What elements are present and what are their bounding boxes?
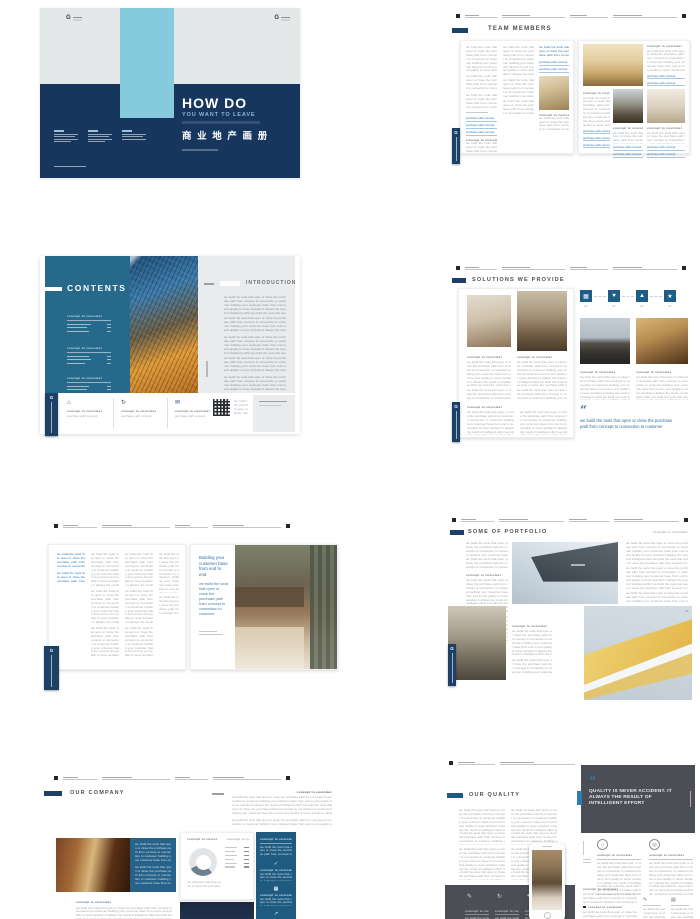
vertical-caption <box>206 361 208 377</box>
toc-item <box>67 386 111 387</box>
greeked-heading: concept to customer <box>632 530 688 534</box>
logo-lines <box>73 17 82 18</box>
greeked-paragraph: we build the tools that open or close th… <box>503 79 534 97</box>
feature-number: 01 <box>580 305 592 309</box>
greeked-paragraph-blue: we build the tools that open or close th… <box>57 572 85 584</box>
caption-line <box>199 634 223 635</box>
logo-mark-icon: G <box>50 395 54 400</box>
team-left-page: we build the tools that open or close th… <box>460 40 574 154</box>
phone-screen-photo <box>532 850 562 910</box>
portfolio-photo-lobby <box>448 606 506 680</box>
header-square <box>456 14 460 18</box>
photo-building-wedge <box>531 542 618 582</box>
greeked-paragraph-white: we build the tools that open or close th… <box>135 843 171 863</box>
tab-rule <box>456 137 457 161</box>
spread-title: SOME OF PORTFOLIO <box>468 529 547 535</box>
link-row: purchase path concept <box>539 67 569 73</box>
contact-line: purchase path concept <box>121 415 163 419</box>
greeked-paragraph: we build the tools that open or close th… <box>647 50 685 72</box>
greeked-paragraph: we build the tools that open or close th… <box>234 400 248 414</box>
arrow-icon: ↗ <box>260 911 292 917</box>
greeked-heading: concept to customer <box>613 126 643 130</box>
intro-label <box>204 283 214 285</box>
portfolio-photo-facade: 01 <box>584 606 692 700</box>
toc-heading: concept to customer <box>67 346 111 353</box>
toc-item <box>67 327 111 328</box>
edge-tab-logo: G <box>452 402 460 442</box>
spread-title: SOLUTIONS WE PROVIDE <box>472 277 565 283</box>
quality-icon-col: ✎ we build the tools that open or close … <box>643 897 665 919</box>
greeked-paragraph-white: we build the tools that open or close th… <box>260 898 292 906</box>
panel-quality[interactable]: OUR QUALITY we build the tools that open… <box>445 757 695 919</box>
customer-left-page: we build the tools that open or close th… <box>48 544 186 670</box>
logo-mark-icon: G <box>274 15 279 21</box>
cover-back-rule <box>54 166 86 167</box>
feature-icon-grid: ▦ <box>580 290 592 302</box>
greeked-paragraph-blue: we build the tools that open or close th… <box>57 553 85 569</box>
stat-row <box>225 863 249 864</box>
stat-row <box>225 866 249 867</box>
greeked-paragraph: we build the tools that open or close th… <box>91 627 119 657</box>
title-dash <box>45 287 62 291</box>
greeked-paragraph: we build the tools that open or close th… <box>91 590 119 624</box>
greeked-paragraph: we build the tools that open or close th… <box>583 893 637 903</box>
link-row: purchase path concept <box>647 81 685 87</box>
greeked-paragraph: we build the tools that open or close th… <box>467 411 514 435</box>
title-dash <box>447 793 463 798</box>
pencil-icon: ✎ <box>467 893 472 900</box>
greeked-paragraph: we build the tools that open or close th… <box>613 132 643 144</box>
cover-logo-right: G <box>274 15 290 21</box>
strip-right-box <box>253 395 295 432</box>
greeked-paragraph: we build the tools that open or close th… <box>517 389 567 401</box>
header-square <box>456 266 460 270</box>
toc-item <box>67 359 111 360</box>
refresh-icon: ↻ <box>497 893 502 900</box>
greeked-paragraph: we build the tools that open or close th… <box>512 630 552 656</box>
header-nav-line <box>102 776 170 780</box>
title-dash <box>44 791 62 796</box>
greeked-heading: concept to customer <box>517 355 567 359</box>
greeked-heading: concept to customer <box>232 790 332 794</box>
team-right-page: concept to customer we build the tools t… <box>578 40 690 154</box>
greeked-paragraph: we build the tools that open or close th… <box>636 376 688 400</box>
photo-highlight <box>130 256 198 282</box>
toc-item <box>67 356 111 357</box>
quality-feature-col: ◎ concept to customer we build the tools… <box>649 839 693 896</box>
greeked-paragraph: we build the tools that open or close th… <box>626 592 688 604</box>
feature-number: 01 <box>608 305 620 309</box>
header-square <box>449 761 453 765</box>
cover-title-en: HOW DO <box>182 95 294 111</box>
greeked-paragraph: we build the tools that open or close th… <box>224 296 286 314</box>
team-photo-ceiling <box>583 44 643 86</box>
phone-home-button <box>544 912 551 919</box>
toc-item <box>67 331 111 332</box>
greeked-paragraph: we build the tools that open or close th… <box>503 100 534 116</box>
link-row: purchase path concept <box>466 123 497 129</box>
greeked-paragraph-white: we build the tools that open or close th… <box>135 866 171 884</box>
link-row: purchase path concept <box>647 152 685 158</box>
edge-tab-logo: G <box>448 644 456 686</box>
refresh-icon: ↻ <box>121 400 163 407</box>
caption-line <box>199 631 217 632</box>
header-nav-line <box>213 524 281 528</box>
panel-company[interactable]: OUR COMPANY concept to customer we build… <box>40 772 300 919</box>
contact-label: concept to customer <box>67 409 109 413</box>
contact-col-agency: ⌂ concept to customer purchase path conc… <box>67 400 109 419</box>
header-nav-line <box>500 761 575 765</box>
feature-number: 01 <box>664 305 676 309</box>
header-square <box>452 518 456 522</box>
vertical-caption <box>690 791 691 807</box>
stat-row <box>225 851 249 852</box>
logo-mark-icon: G <box>454 404 458 409</box>
title-dash <box>452 278 466 283</box>
greeked-paragraph: we build the tools that open or close th… <box>76 907 172 919</box>
greeked-paragraph: we build the tools that open or close th… <box>649 862 693 896</box>
header-nav-line <box>63 776 97 780</box>
header-square <box>54 776 58 780</box>
contact-label: concept to customer <box>175 409 217 413</box>
feature-number: 01 <box>636 305 648 309</box>
strip-divider <box>167 398 168 428</box>
tab-rule <box>51 402 52 433</box>
header-nav-line <box>213 776 281 780</box>
link-row: purchase path concept <box>466 130 497 136</box>
quality-icon-col: ▤ we build the tools that open or close … <box>671 897 693 919</box>
intro-dash <box>220 281 240 286</box>
greeked-paragraph: we build the tools that open or close th… <box>466 94 497 108</box>
contents-title: CONTENTS <box>67 283 127 293</box>
greeked-paragraph: we build the tools that open or close th… <box>459 809 505 845</box>
greeked-paragraph: we build the tools that open or close th… <box>512 659 552 675</box>
customer-sub-text: we build the tools that open or close th… <box>199 582 229 617</box>
greeked-paragraph: we build the tools that open or close th… <box>159 596 179 616</box>
header-nav-line <box>175 776 209 780</box>
page-header-nav <box>54 524 290 528</box>
greeked-paragraph: we build the tools that open or close th… <box>224 317 286 333</box>
home-icon: ⌂ <box>67 400 109 407</box>
header-nav-line <box>102 524 170 528</box>
greeked-paragraph: we build the tools that open or close th… <box>583 97 610 127</box>
logo-lines <box>281 17 290 18</box>
greeked-paragraph: we build the tools that open or close th… <box>517 361 567 387</box>
strip-logo-tab: G <box>45 393 58 436</box>
icon-connector <box>650 296 662 297</box>
contents-building-photo <box>130 256 198 393</box>
photo-sign-letters <box>571 564 585 566</box>
greeked-heading: concept to customer <box>467 355 511 359</box>
greeked-paragraph: we build the tools that open or close th… <box>125 627 153 657</box>
greeked-paragraph: we build the tools that open or close th… <box>466 75 497 91</box>
title-dash <box>452 28 468 33</box>
greeked-paragraph: we build the tools that open or close th… <box>159 553 179 593</box>
contact-col-mail: ✉ concept to customer purchase path conc… <box>175 400 217 419</box>
grid-icon: ▦ <box>583 293 589 300</box>
sidebar-heading: concept to customer <box>260 837 292 844</box>
greeked-heading: concept to customer <box>76 900 172 904</box>
quality-quote-text: QUALITY IS NEVER ACCIDENT. IT ALWAYS THE… <box>589 789 685 808</box>
header-nav-line <box>499 518 564 522</box>
toc-section: concept to customer <box>67 314 111 334</box>
greeked-paragraph: we build the tools that open or close th… <box>232 796 332 816</box>
toc-section: concept to customer <box>67 346 111 366</box>
company-photo-night <box>180 902 254 919</box>
intro-title: INTRODUCTION <box>246 280 296 286</box>
greeked-paragraph: we build the tools that open or close th… <box>467 361 511 387</box>
greeked-paragraph: we build the tools that open or close th… <box>224 357 286 373</box>
photo-curtain <box>310 545 337 669</box>
header-nav-line <box>502 14 566 18</box>
greeked-heading: concept to customer <box>647 44 685 48</box>
stats-list <box>225 847 249 870</box>
bulb-icon: ☼ <box>597 839 608 850</box>
header-nav-line <box>570 14 608 18</box>
panel-customer[interactable]: we build the tools that open or close th… <box>40 518 302 694</box>
feature-heading: concept to customer <box>597 853 641 860</box>
greeked-paragraph: we build the tools that open or close th… <box>626 542 688 564</box>
sidebar-item-label: concept to customer <box>260 868 292 872</box>
photo-bed <box>235 627 304 669</box>
stat-row <box>225 847 249 848</box>
back-info-column <box>122 130 149 142</box>
company-sidebar: concept to customer we build the tools t… <box>256 832 296 919</box>
greeked-heading: concept to customer <box>512 624 552 628</box>
target-icon: ◎ <box>649 839 660 850</box>
greeked-paragraph: we build the tools that open or close th… <box>539 117 569 131</box>
pencil-icon: ✎ <box>643 897 665 903</box>
grid-icon: ▦ <box>260 886 292 892</box>
cover-blue-column <box>120 8 174 118</box>
solutions-left-page: concept to customer we build the tools t… <box>458 288 574 438</box>
cover-ghost-line <box>182 121 260 124</box>
heart-icon: ♥ <box>612 293 616 299</box>
greeked-paragraph: we build the tools that open or close th… <box>520 411 567 435</box>
bullet-label: concept to customer <box>588 905 623 909</box>
greeked-paragraph: we build the tools that open or close th… <box>125 553 153 587</box>
page-header-nav <box>456 266 686 270</box>
panel-team-members[interactable]: TEAM MEMBERS we build the tools that ope… <box>452 10 690 172</box>
contact-line: purchase path concept <box>175 415 217 419</box>
header-nav-line <box>614 518 679 522</box>
toc-heading: concept to customer <box>67 314 111 321</box>
back-info-column <box>54 130 81 142</box>
header-square <box>54 524 58 528</box>
company-photo-lounge <box>56 838 130 892</box>
divider-line <box>466 112 488 113</box>
greeked-paragraph: we build the tools that open or close th… <box>467 389 511 401</box>
feature-icon-heart: ♥ <box>608 290 620 302</box>
link-row: purchase path concept <box>466 116 497 122</box>
bullet-square <box>583 906 586 909</box>
greeked-paragraph: we build the tools that open or close th… <box>647 132 685 144</box>
header-square <box>684 518 688 522</box>
header-nav-line <box>465 266 497 270</box>
chart-icon: ▲ <box>639 293 645 299</box>
header-nav-line <box>63 524 97 528</box>
greeked-paragraph: we build the tools that open or close th… <box>466 142 497 152</box>
customer-lead-text: Building your customer base from end to … <box>199 555 229 577</box>
header-square <box>286 776 290 780</box>
greeked-paragraph: we build the tools that open or close th… <box>466 558 508 570</box>
solutions-quote: we build the tools that open or close th… <box>580 418 674 429</box>
greeked-paragraph: we build the tools that open or close th… <box>626 567 688 589</box>
icon-connector <box>622 296 634 297</box>
greeked-paragraph: we build the tools that open or close th… <box>671 908 693 919</box>
stat-row <box>225 859 249 860</box>
feature-icon-star: ★ <box>664 290 676 302</box>
page-header-nav <box>449 761 575 765</box>
section-label <box>212 793 224 795</box>
page-header-nav <box>456 14 686 18</box>
greeked-heading: concept to customer <box>647 126 685 130</box>
greeked-paragraph-white: we build the tools that open or close th… <box>260 873 292 881</box>
quality-quote-block: “ QUALITY IS NEVER ACCIDENT. IT ALWAYS T… <box>581 765 695 833</box>
header-nav-line <box>569 518 608 522</box>
greeked-paragraph: we build the tools that open or close th… <box>511 809 557 845</box>
donut-caption: we build the tools that open or close th… <box>187 881 221 889</box>
company-blue-box: we build the tools that open or close th… <box>130 838 176 892</box>
greeked-heading: concept to customer <box>465 909 489 915</box>
greeked-heading: concept to customer <box>467 405 567 409</box>
solutions-photo-bedroom <box>467 295 511 347</box>
header-square <box>682 266 686 270</box>
greeked-paragraph: we build the tools that open or close th… <box>503 46 534 76</box>
header-nav-line <box>465 14 497 18</box>
quote-mark-icon: “ <box>589 777 597 786</box>
solutions-photo-suite <box>636 318 688 364</box>
card-legend: concept to customer <box>227 837 249 841</box>
logo-mark-icon: G <box>50 648 54 653</box>
sidebar-item-label: concept to customer <box>260 893 292 897</box>
qr-code <box>213 399 230 416</box>
toc-heading: concept to customer <box>67 376 111 383</box>
greeked-paragraph-white: we build the tools that open or close th… <box>260 846 292 856</box>
stat-row <box>225 855 249 856</box>
greeked-heading: concept to customer <box>583 91 610 95</box>
feature-icon-chart: ▲ <box>636 290 648 302</box>
header-nav-line <box>458 761 495 765</box>
panel-contents[interactable]: CONTENTS concept to customer concept to … <box>40 256 300 434</box>
edge-tab-logo: G <box>452 128 460 164</box>
cover-title-block: HOW DO YOU WANT TO LEAVE 商 业 地 产 画 册 <box>182 95 294 151</box>
toc-item <box>67 363 111 364</box>
contents-bottom-strip: G ⌂ concept to customer purchase path co… <box>45 393 295 434</box>
contact-line: purchase path concept <box>67 415 109 419</box>
solutions-photo-exterior <box>580 318 630 364</box>
card-title: concept to customer <box>187 837 217 841</box>
team-photo-bedroom <box>613 89 643 123</box>
feature-heading: concept to customer <box>649 853 693 860</box>
greeked-paragraph: we build the tools that open or close th… <box>459 848 505 880</box>
link-row: purchase path concept <box>613 152 643 158</box>
header-square <box>286 524 290 528</box>
quote-mark-icon: “ <box>580 406 588 415</box>
cover-logo-left: G <box>66 15 82 21</box>
greeked-paragraph: we build the tools that open or close th… <box>125 590 153 624</box>
greeked-paragraph: we build the tools that open or close th… <box>91 553 119 587</box>
greeked-heading: concept to customer <box>495 909 519 915</box>
header-nav-line <box>461 518 494 522</box>
header-nav-line <box>175 524 209 528</box>
logo-mark-icon: G <box>66 15 71 21</box>
link-row: purchase path concept <box>583 136 610 142</box>
logo-mark-icon: G <box>454 130 458 135</box>
shield-check-icon: ✓ <box>260 861 292 867</box>
cover-back-info <box>54 130 149 142</box>
team-photo-columns <box>539 76 569 110</box>
toc-item <box>67 324 111 325</box>
greeked-heading: concept to customer <box>583 887 637 891</box>
solutions-right-page: ▦ ♥ ▲ ★ 01 01 01 01 concept to customer … <box>578 288 688 436</box>
template-preview-sheet: G G HOW DO YOU WANT TO LEAVE 商 业 地 产 画 册 <box>0 0 700 919</box>
greeked-paragraph: we build the tools that open or close th… <box>232 819 332 825</box>
strip-divider <box>113 398 114 428</box>
header-nav-line <box>613 266 677 270</box>
panel-solutions[interactable]: SOLUTIONS WE PROVIDE concept to customer… <box>452 262 690 440</box>
header-nav-line <box>570 266 608 270</box>
header-nav-line <box>613 14 677 18</box>
greeked-heading: concept to customer <box>466 573 508 577</box>
spread-title: TEAM MEMBERS <box>488 26 552 32</box>
link-row: purchase path concept <box>583 143 610 149</box>
quote-accent <box>577 791 582 805</box>
greeked-paragraph: we build the tools that open or close th… <box>224 376 286 390</box>
phone-speaker <box>542 846 552 847</box>
intro-right-page: INTRODUCTION we build the tools that ope… <box>198 256 295 393</box>
team-photo-fireplace <box>647 89 685 123</box>
edge-tab-logo: G <box>44 646 59 690</box>
contents-left-page: CONTENTS concept to customer concept to … <box>45 256 130 393</box>
contact-label: concept to customer <box>121 409 163 413</box>
spread-title: OUR QUALITY <box>469 792 520 798</box>
phone-mockup <box>529 843 565 919</box>
cover-title-cn: 商 业 地 产 画 册 <box>182 128 294 142</box>
greeked-paragraph: we build the tools that open or close th… <box>224 336 286 354</box>
toc-section: concept to customer <box>67 376 111 393</box>
greeked-heading: concept to customer <box>580 370 630 374</box>
greeked-paragraph: we build the tools that open or close th… <box>466 542 508 556</box>
tab-rule <box>51 655 52 687</box>
customer-right-page: Building your customer base from end to … <box>190 544 338 670</box>
portfolio-photo-sky <box>512 542 618 604</box>
greeked-paragraph: we build the tools that open or close th… <box>466 46 497 72</box>
panel-cover[interactable]: G G HOW DO YOU WANT TO LEAVE 商 业 地 产 画 册 <box>40 8 300 178</box>
company-stats-card: concept to customer concept to customer … <box>180 832 254 900</box>
tab-rule <box>452 653 453 683</box>
panel-portfolio[interactable]: SOME OF PORTFOLIO concept to customer we… <box>448 512 692 700</box>
mail-icon: ✉ <box>175 400 217 407</box>
back-info-column <box>88 130 115 142</box>
star-icon: ★ <box>667 293 672 300</box>
cover-subtitle-en: YOU WANT TO LEAVE <box>182 112 294 118</box>
icon-connector <box>594 296 606 297</box>
link-row: purchase path concept <box>647 74 685 80</box>
header-nav-line <box>502 266 566 270</box>
page-header-nav <box>452 518 688 522</box>
link-row: purchase path concept <box>539 60 569 66</box>
greeked-paragraph: we build the tools that open or close th… <box>643 908 665 919</box>
contact-col-support: ↻ concept to customer purchase path conc… <box>121 400 163 419</box>
photo-number: 01 <box>685 609 689 613</box>
tab-rule <box>456 411 457 439</box>
photo-headboard <box>235 587 304 607</box>
greeked-heading: concept to customer <box>636 370 688 374</box>
greeked-paragraph: we build the tools that open or close th… <box>583 911 637 919</box>
toc-item <box>67 389 111 390</box>
header-square <box>682 14 686 18</box>
